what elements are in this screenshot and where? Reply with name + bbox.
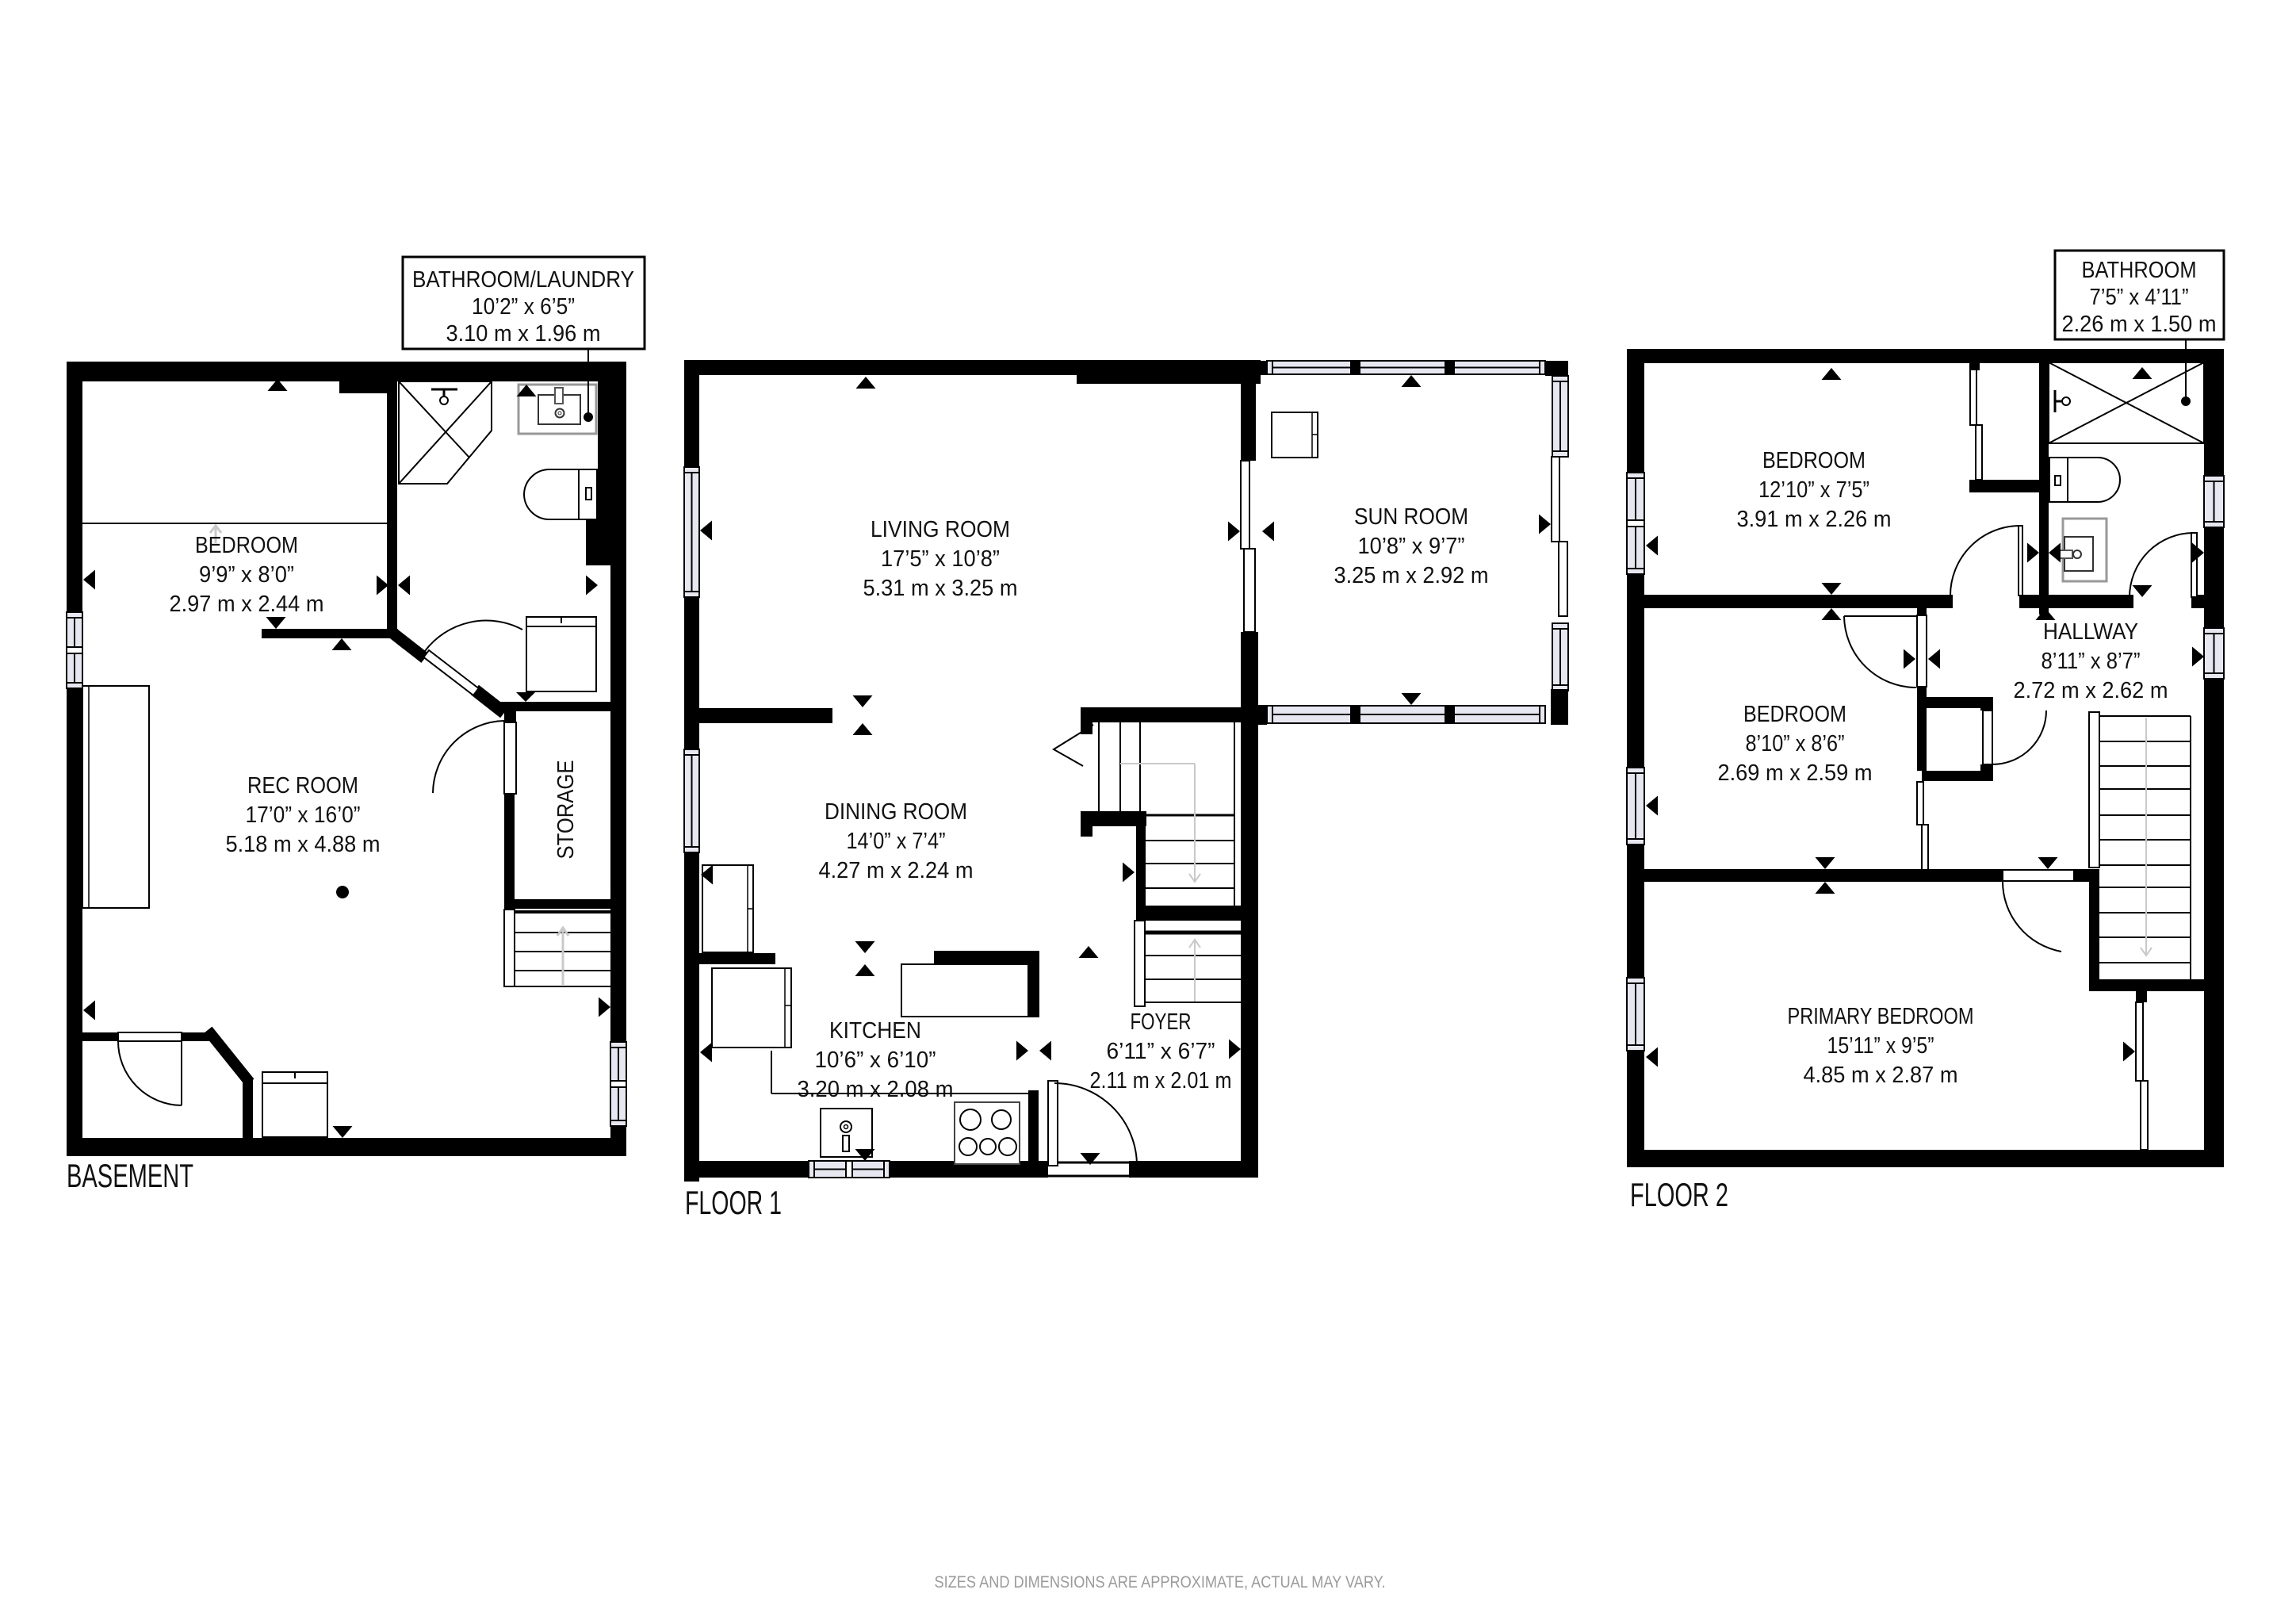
svg-text:PRIMARY BEDROOM: PRIMARY BEDROOM [1788,1004,1974,1029]
svg-text:4.85 m x 2.87 m: 4.85 m x 2.87 m [1804,1063,1958,1088]
svg-text:2.11 m x 2.01 m: 2.11 m x 2.01 m [1090,1068,1232,1094]
svg-text:10’6” x 6’10”: 10’6” x 6’10” [815,1048,936,1073]
svg-text:17’5” x 10’8”: 17’5” x 10’8” [881,546,1000,572]
svg-text:3.25 m x 2.92 m: 3.25 m x 2.92 m [1334,563,1489,588]
svg-text:LIVING ROOM: LIVING ROOM [871,517,1010,542]
svg-text:SIZES AND DIMENSIONS ARE APPRO: SIZES AND DIMENSIONS ARE APPROXIMATE, AC… [935,1573,1386,1591]
svg-text:BATHROOM/LAUNDRY: BATHROOM/LAUNDRY [412,267,634,293]
svg-text:FLOOR 2: FLOOR 2 [1630,1176,1728,1213]
svg-text:8’11” x 8’7”: 8’11” x 8’7” [2042,649,2141,674]
svg-text:BEDROOM: BEDROOM [1743,702,1846,727]
svg-text:5.18 m x 4.88 m: 5.18 m x 4.88 m [226,832,381,857]
svg-text:DINING ROOM: DINING ROOM [825,799,967,825]
svg-text:14’0” x 7’4”: 14’0” x 7’4” [847,829,946,854]
svg-text:5.31 m x 3.25 m: 5.31 m x 3.25 m [863,576,1018,601]
svg-text:BEDROOM: BEDROOM [195,533,298,558]
svg-text:2.97 m x 2.44 m: 2.97 m x 2.44 m [170,592,324,617]
svg-text:STORAGE: STORAGE [553,760,579,860]
svg-text:HALLWAY: HALLWAY [2043,619,2138,645]
svg-text:4.27 m x 2.24 m: 4.27 m x 2.24 m [819,858,974,883]
svg-text:FOYER: FOYER [1131,1009,1192,1035]
svg-text:KITCHEN: KITCHEN [829,1018,921,1044]
svg-text:2.72 m x 2.62 m: 2.72 m x 2.62 m [2014,678,2168,703]
svg-text:3.91 m x 2.26 m: 3.91 m x 2.26 m [1737,507,1892,532]
svg-text:6’11” x 6’7”: 6’11” x 6’7” [1107,1039,1215,1064]
svg-text:10’8” x 9’7”: 10’8” x 9’7” [1358,534,1465,559]
svg-text:7’5” x 4’11”: 7’5” x 4’11” [2090,285,2189,310]
svg-text:2.69 m x 2.59 m: 2.69 m x 2.59 m [1718,760,1873,786]
svg-text:9’9” x 8’0”: 9’9” x 8’0” [199,562,294,588]
svg-text:BASEMENT: BASEMENT [67,1157,193,1194]
svg-text:17’0” x 16’0”: 17’0” x 16’0” [246,802,361,828]
svg-text:2.26 m x 1.50 m: 2.26 m x 1.50 m [2062,312,2217,337]
svg-text:BATHROOM: BATHROOM [2082,258,2197,283]
svg-text:10’2” x 6’5”: 10’2” x 6’5” [472,294,575,320]
svg-text:3.10 m x 1.96 m: 3.10 m x 1.96 m [446,321,601,347]
svg-text:3.20 m x 2.08 m: 3.20 m x 2.08 m [798,1077,954,1102]
svg-text:BEDROOM: BEDROOM [1762,448,1865,473]
svg-text:12’10” x 7’5”: 12’10” x 7’5” [1758,477,1869,503]
svg-text:SUN ROOM: SUN ROOM [1354,504,1468,530]
svg-text:8’10” x 8’6”: 8’10” x 8’6” [1746,731,1845,756]
svg-text:REC ROOM: REC ROOM [247,773,358,799]
svg-text:15’11” x 9’5”: 15’11” x 9’5” [1827,1033,1934,1059]
svg-text:FLOOR 1: FLOOR 1 [685,1184,782,1221]
